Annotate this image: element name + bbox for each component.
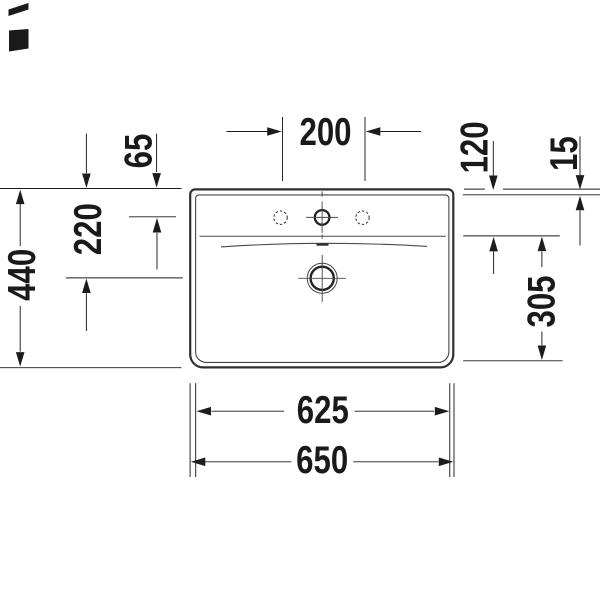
svg-text:305: 305 [520, 275, 563, 327]
svg-text:440: 440 [1, 249, 44, 301]
svg-text:220: 220 [67, 203, 110, 255]
svg-text:120: 120 [453, 121, 496, 173]
svg-text:625: 625 [297, 389, 349, 432]
svg-text:650: 650 [296, 439, 348, 482]
svg-text:15: 15 [543, 136, 586, 171]
svg-text:65: 65 [117, 134, 160, 169]
svg-text:200: 200 [299, 111, 351, 154]
